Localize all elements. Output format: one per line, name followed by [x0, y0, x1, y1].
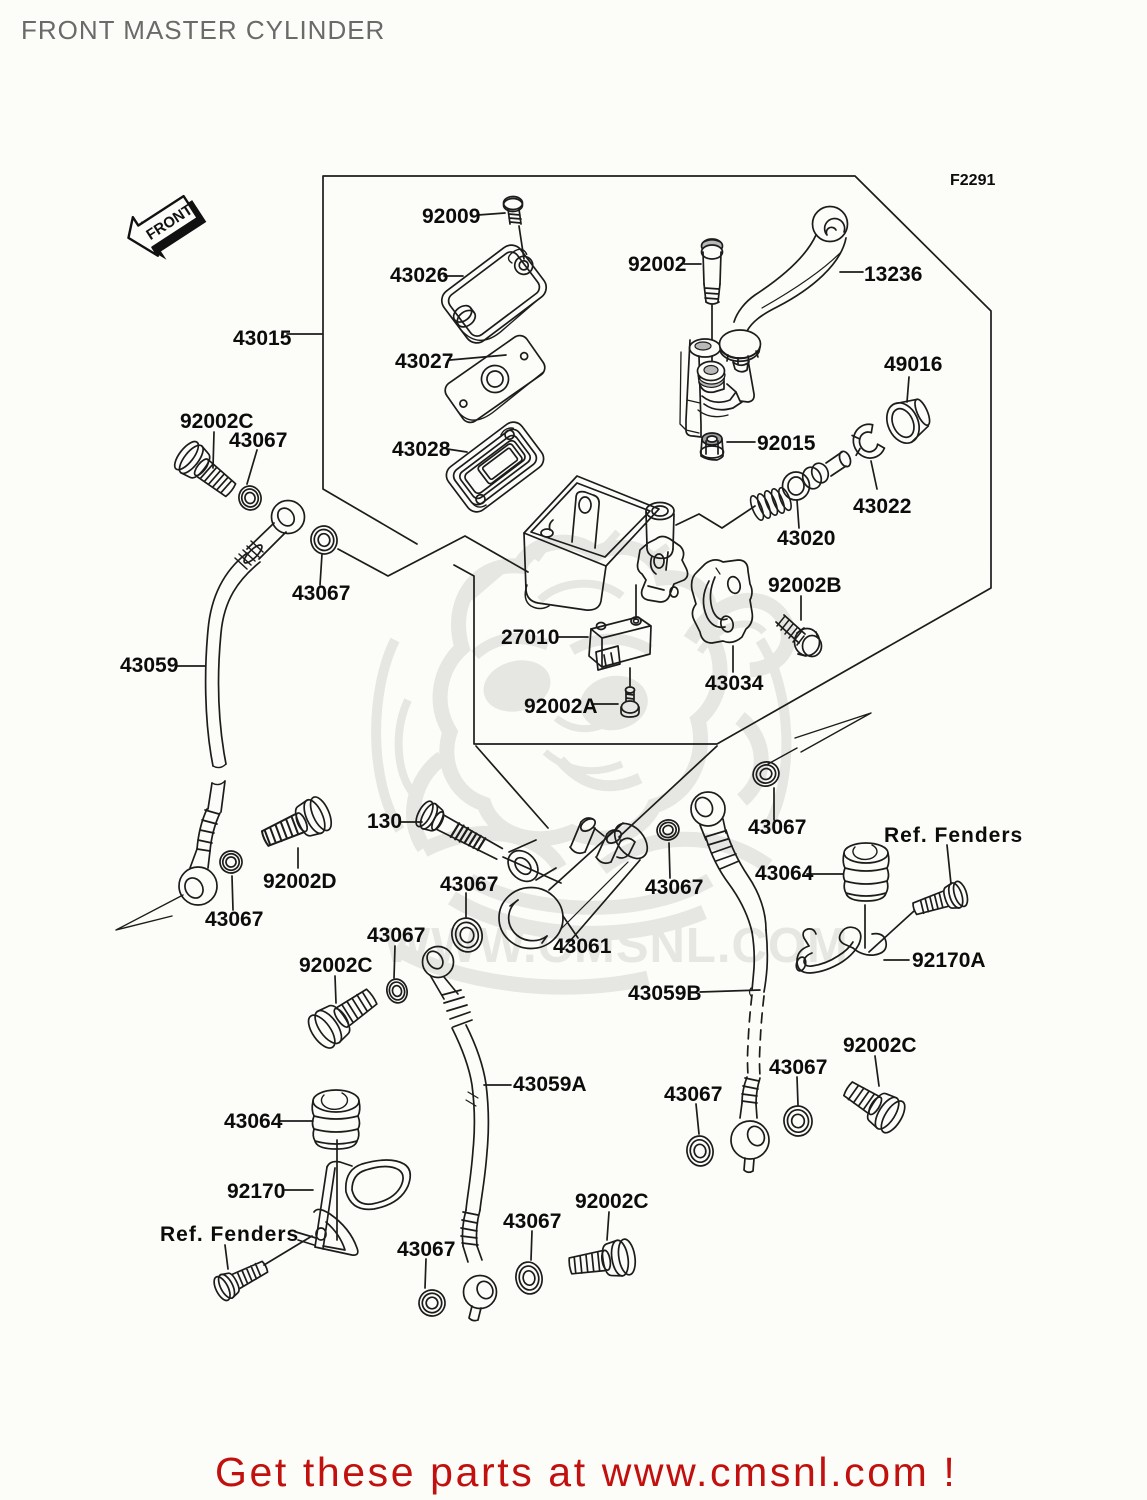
svg-text:43028: 43028: [392, 438, 451, 461]
svg-text:43067: 43067: [645, 876, 703, 899]
svg-text:92009: 92009: [422, 205, 480, 228]
svg-text:43020: 43020: [777, 527, 835, 550]
svg-text:F2291: F2291: [950, 172, 995, 189]
svg-text:43027: 43027: [395, 350, 453, 373]
svg-text:43067: 43067: [503, 1210, 561, 1233]
svg-text:43026: 43026: [390, 264, 448, 287]
svg-text:Ref. Fenders: Ref. Fenders: [884, 824, 1023, 847]
svg-text:43061: 43061: [553, 935, 612, 958]
svg-text:FRONT MASTER CYLINDER: FRONT MASTER CYLINDER: [21, 15, 385, 45]
svg-text:43067: 43067: [292, 582, 350, 605]
svg-text:92015: 92015: [757, 432, 816, 455]
svg-text:43067: 43067: [440, 873, 498, 896]
svg-text:43059A: 43059A: [513, 1073, 587, 1096]
svg-text:92170A: 92170A: [912, 949, 986, 972]
svg-text:92002B: 92002B: [768, 574, 842, 597]
svg-text:92002D: 92002D: [263, 870, 337, 893]
svg-text:43064: 43064: [755, 862, 814, 885]
svg-text:92002C: 92002C: [299, 954, 373, 977]
svg-text:43034: 43034: [705, 672, 764, 695]
svg-text:43067: 43067: [205, 908, 263, 931]
svg-text:27010: 27010: [501, 626, 559, 649]
svg-text:92002C: 92002C: [575, 1190, 649, 1213]
svg-text:Ref. Fenders: Ref. Fenders: [160, 1223, 299, 1246]
svg-text:130: 130: [367, 810, 402, 833]
svg-text:43022: 43022: [853, 495, 911, 518]
svg-text:92170: 92170: [227, 1180, 285, 1203]
svg-text:92002A: 92002A: [524, 695, 598, 718]
svg-text:43064: 43064: [224, 1110, 283, 1133]
svg-text:43067: 43067: [397, 1238, 455, 1261]
svg-text:13236: 13236: [864, 263, 922, 286]
svg-text:Get these parts at www.cmsnl.c: Get these parts at www.cmsnl.com !: [215, 1449, 957, 1495]
svg-text:49016: 49016: [884, 353, 942, 376]
svg-text:43067: 43067: [229, 429, 287, 452]
svg-text:43059: 43059: [120, 654, 178, 677]
svg-text:92002C: 92002C: [843, 1034, 917, 1057]
svg-text:43067: 43067: [769, 1056, 827, 1079]
svg-text:43067: 43067: [664, 1083, 722, 1106]
svg-text:92002: 92002: [628, 253, 686, 276]
svg-text:43059B: 43059B: [628, 982, 702, 1005]
svg-text:43067: 43067: [367, 924, 425, 947]
svg-text:43067: 43067: [748, 816, 806, 839]
svg-text:43015: 43015: [233, 327, 292, 350]
